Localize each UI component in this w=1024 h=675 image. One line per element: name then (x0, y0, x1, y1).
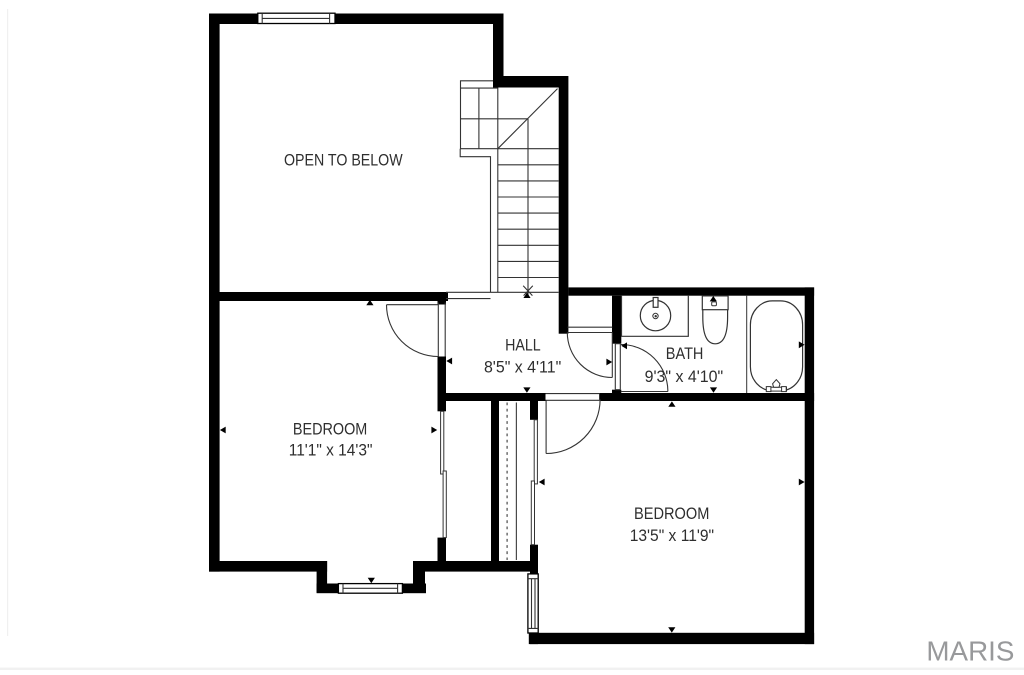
svg-text:BEDROOM: BEDROOM (634, 504, 709, 523)
svg-text:9'3" x 4'10": 9'3" x 4'10" (645, 367, 724, 386)
svg-text:BEDROOM: BEDROOM (293, 420, 367, 439)
svg-text:MARIS: MARIS (926, 635, 1014, 666)
svg-text:OPEN TO BELOW: OPEN TO BELOW (284, 151, 403, 170)
svg-text:13'5" x 11'9": 13'5" x 11'9" (630, 526, 714, 545)
svg-text:8'5" x 4'11": 8'5" x 4'11" (484, 357, 561, 376)
svg-text:11'1" x 14'3": 11'1" x 14'3" (289, 441, 373, 460)
svg-text:HALL: HALL (505, 336, 541, 355)
svg-text:BATH: BATH (666, 344, 704, 363)
